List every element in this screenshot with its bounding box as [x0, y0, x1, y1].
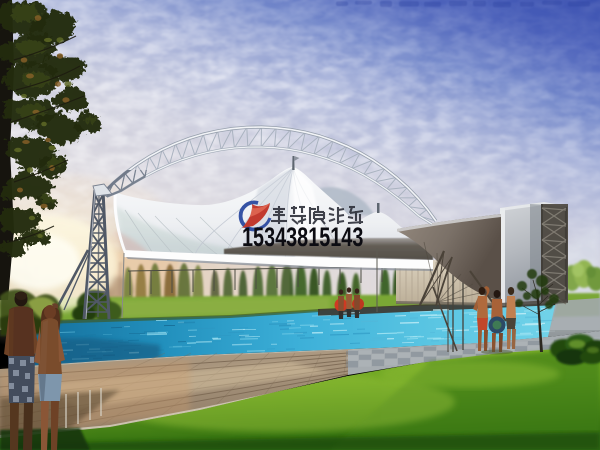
svg-text:15343815143: 15343815143	[242, 223, 363, 253]
